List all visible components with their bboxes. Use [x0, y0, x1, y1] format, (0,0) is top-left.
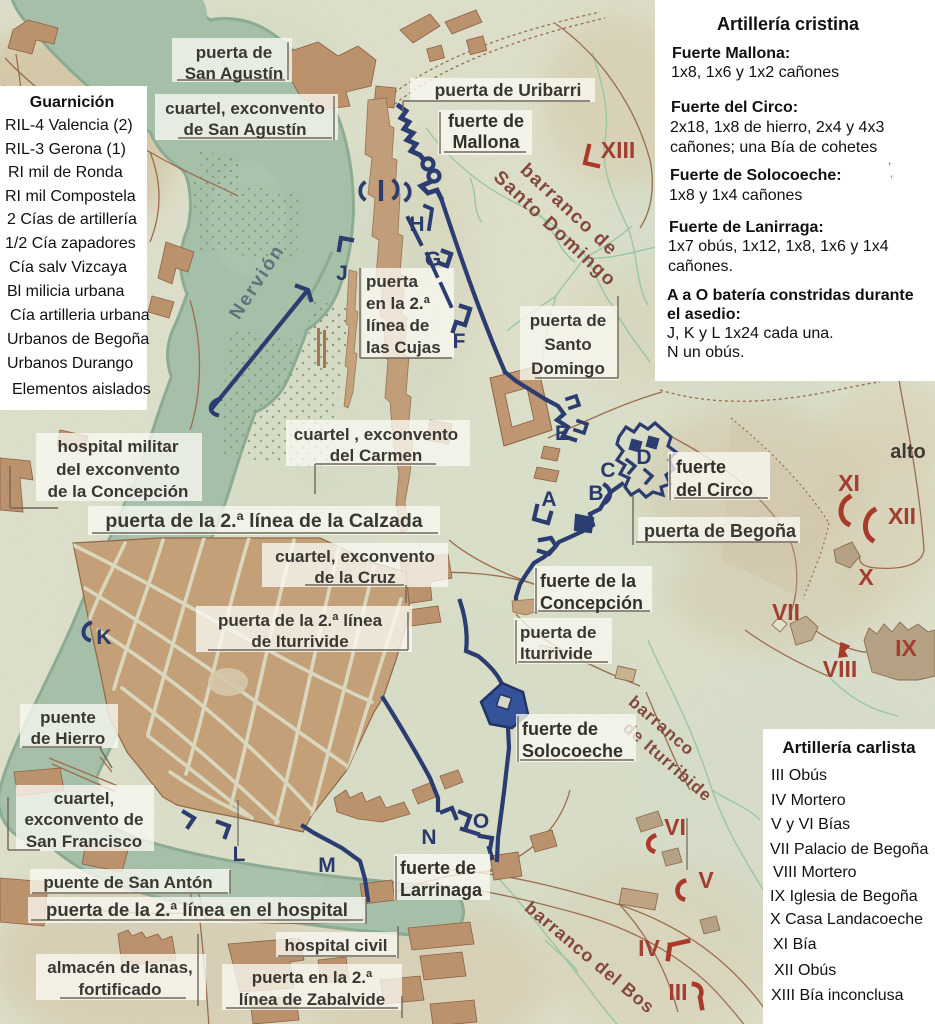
svg-text:III Obús: III Obús	[771, 767, 827, 784]
svg-text:’: ’	[890, 172, 893, 188]
svg-text:N un obús.: N un obús.	[667, 344, 744, 361]
svg-text:V y VI Bías: V y VI Bías	[771, 816, 850, 833]
svg-text:1x8, 1x6 y 1x2 cañones: 1x8, 1x6 y 1x2 cañones	[671, 64, 839, 81]
svg-text:VIII Mortero: VIII Mortero	[773, 864, 857, 881]
svg-text:RI mil Compostela: RI mil Compostela	[5, 188, 136, 205]
svg-text:A a O batería constridas duran: A a O batería constridas durante	[667, 287, 914, 304]
svg-text:J, K y L 1x24 cada una.: J, K y L 1x24 cada una.	[667, 325, 834, 342]
svg-text:X Casa Landacoeche: X Casa Landacoeche	[770, 911, 923, 928]
svg-text:1x7 obús, 1x12, 1x8, 1x6 y 1x4: 1x7 obús, 1x12, 1x8, 1x6 y 1x4	[668, 238, 889, 255]
svg-text:Fuerte del Circo:: Fuerte del Circo:	[671, 99, 798, 116]
svg-text:IV Mortero: IV Mortero	[771, 792, 846, 809]
svg-text:cañones; una Bía de cohetes: cañones; una Bía de cohetes	[670, 139, 877, 156]
svg-text:Artillería carlista: Artillería carlista	[782, 738, 916, 757]
svg-text:Cía artilleria urbana: Cía artilleria urbana	[10, 307, 150, 324]
svg-text:XII Obús: XII Obús	[774, 962, 836, 979]
svg-text:Fuerte Mallona:: Fuerte Mallona:	[672, 45, 790, 62]
svg-text:cañones.: cañones.	[668, 258, 733, 275]
svg-text:Bl milicia urbana: Bl milicia urbana	[7, 283, 124, 300]
svg-text:VII Palacio de Begoña: VII Palacio de Begoña	[770, 841, 928, 858]
svg-text:IX Iglesia de Begoña: IX Iglesia de Begoña	[770, 888, 918, 905]
svg-text:Guarnición: Guarnición	[30, 94, 114, 111]
svg-text:XIII Bía inconclusa: XIII Bía inconclusa	[771, 987, 904, 1004]
svg-text:XI Bía: XI Bía	[773, 936, 817, 953]
svg-text:2x18, 1x8 de hierro, 2x4 y 4x: 2x18, 1x8 de hierro, 2x4 y 4x3	[670, 119, 884, 136]
svg-text:RIL-4 Valencia (2): RIL-4 Valencia (2)	[5, 117, 133, 134]
svg-text:el asedio:: el asedio:	[667, 306, 741, 323]
svg-text:1/2 Cía zapadores: 1/2 Cía zapadores	[5, 235, 136, 252]
svg-text:1x8 y 1x4 cañones: 1x8 y 1x4 cañones	[669, 187, 802, 204]
svg-text:RI mil de Ronda: RI mil de Ronda	[8, 164, 123, 181]
svg-text:RIL-3 Gerona (1): RIL-3 Gerona (1)	[5, 141, 126, 158]
svg-text:Cía salv Vizcaya: Cía salv Vizcaya	[9, 259, 127, 276]
svg-text:Artillería cristina: Artillería cristina	[717, 14, 860, 34]
svg-text:Fuerte de Solocoeche:: Fuerte de Solocoeche:	[670, 167, 842, 184]
svg-text:Fuerte de Lanirraga:: Fuerte de Lanirraga:	[669, 219, 824, 236]
svg-text:Elementos aislados: Elementos aislados	[12, 381, 151, 398]
svg-text:Urbanos Durango: Urbanos Durango	[7, 355, 133, 372]
svg-text:Urbanos de Begoña: Urbanos de Begoña	[7, 331, 149, 348]
svg-text:2 Cías de artillería: 2 Cías de artillería	[7, 211, 137, 228]
